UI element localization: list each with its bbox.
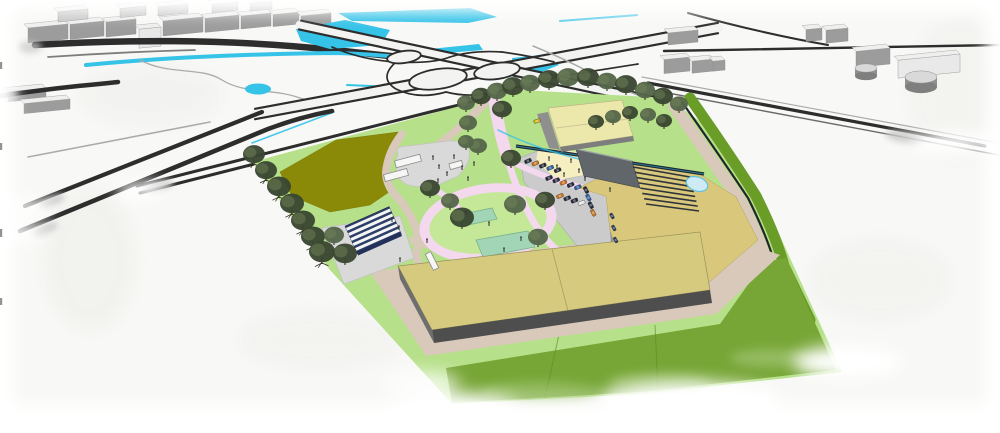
outskirt-building (822, 24, 848, 43)
storage-tank (855, 64, 877, 80)
storage-tank (905, 71, 937, 93)
outskirt-building (852, 44, 890, 67)
outskirt-building (159, 13, 203, 36)
aerial-site-plan-rendering (0, 0, 1000, 433)
outskirt-building (664, 26, 698, 45)
outskirt-building (660, 53, 690, 74)
outskirt-building (102, 15, 136, 37)
outskirt-building (201, 11, 239, 32)
scene-canvas (0, 0, 1000, 433)
small-pond (245, 84, 271, 95)
outskirt-building (24, 20, 68, 43)
